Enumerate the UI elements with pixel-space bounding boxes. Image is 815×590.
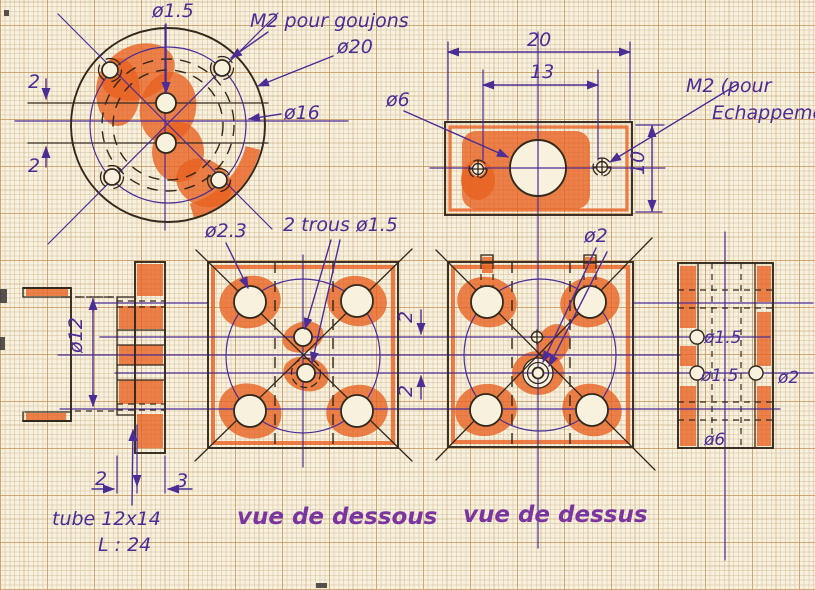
caption-vue-de-dessous: vue de dessous: [237, 504, 437, 530]
dim-phi23-label: ø2.3: [204, 220, 247, 242]
note-m2-echappement-2: Echappement: [712, 102, 815, 124]
dim-thickness-3: 3: [176, 470, 188, 492]
dim-height-10: 10: [627, 151, 649, 175]
note-tube-size: tube 12x14: [52, 508, 161, 530]
dim-section-phi15-top: ø1.5: [703, 328, 741, 348]
dim-phi20-label: ø20: [336, 36, 373, 58]
dim-phi16-label: ø16: [283, 102, 320, 124]
note-m2-echappement-1: M2 (pour: [686, 75, 773, 97]
dim-thickness-2: 2: [95, 468, 107, 490]
dim-section-phi2: ø2: [777, 368, 799, 388]
dim-phi12-label: ø12: [65, 317, 87, 354]
flange-front-view: ø1.5 M2 pour goujons ø20 ø16 2 2: [28, 0, 409, 244]
graph-paper-sheet: ø1.5 M2 pour goujons ø20 ø16 2 2 20: [0, 0, 815, 590]
note-2-trous: 2 trous ø1.5: [283, 214, 398, 236]
dim-offset-top: 2: [28, 71, 40, 93]
dim-section-phi6: ø6: [703, 430, 725, 450]
dim-section-phi15-mid: ø1.5: [700, 366, 738, 386]
note-m2-goujons: M2 pour goujons: [250, 10, 409, 32]
dim-width-20: 20: [527, 29, 551, 51]
note-tube-length: L : 24: [98, 534, 151, 556]
technical-drawing: ø1.5 M2 pour goujons ø20 ø16 2 2 20: [0, 0, 815, 590]
dim-hole-offset-lower: 2: [395, 385, 417, 397]
dim-phi2-label: ø2: [583, 225, 608, 247]
dim-offset-bottom: 2: [28, 155, 40, 177]
dim-phi15-label: ø1.5: [151, 0, 194, 22]
plate-section-view: ø1.5 ø1.5 ø2 ø6: [678, 263, 799, 450]
caption-vue-de-dessus: vue de dessus: [463, 502, 648, 528]
dim-phi6-label: ø6: [385, 89, 410, 111]
dim-spacing-13: 13: [530, 61, 554, 83]
dim-hole-offset-upper: 2: [395, 311, 417, 323]
